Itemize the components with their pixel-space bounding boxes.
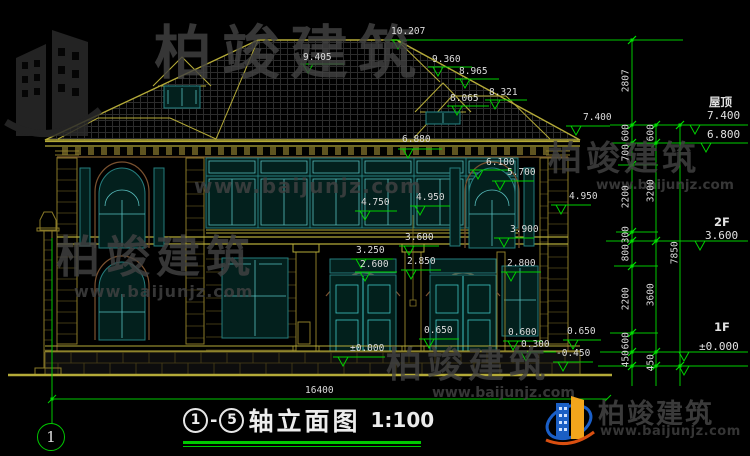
dim-2: 700 xyxy=(621,131,631,175)
dim-0: 600 xyxy=(646,111,656,155)
dim-k6880: 6.880 xyxy=(402,135,431,145)
level-roof-label: 屋顶 xyxy=(709,97,732,109)
dim-8: 450 xyxy=(621,337,631,381)
dim-k2800: 2.800 xyxy=(507,259,536,269)
drawing-title: 1 - 5 轴立面图 1:100 xyxy=(183,402,434,438)
dim-k3250: 3.250 xyxy=(356,246,385,256)
level-f1-label: 1F xyxy=(714,322,730,334)
dim-k10207: 10.207 xyxy=(391,27,425,37)
dim-k8965: 8.965 xyxy=(459,67,488,77)
level-f1-value: ±0.000 xyxy=(699,341,739,352)
dim-k0650l: 0.650 xyxy=(424,326,453,336)
level-roof-value: 7.400 xyxy=(707,110,740,121)
dim-kzero: ±0.000 xyxy=(350,344,384,354)
dim-overall_width: 16400 xyxy=(305,386,334,396)
dim-k3600: 3.600 xyxy=(405,233,434,243)
dim-k5700: 5.700 xyxy=(507,168,536,178)
dim-k0650r: 0.650 xyxy=(567,327,596,337)
dim-k8065: 8.065 xyxy=(450,94,479,104)
dim-k0300: 0.300 xyxy=(521,340,550,350)
brand-logo-url: www.baijunjz.com xyxy=(600,424,741,439)
cad-viewport: 柏竣建筑 www.baijunjz.com 柏竣建筑 www.baijunjz.… xyxy=(0,0,750,456)
title-underline-thick xyxy=(183,441,421,444)
dim-2: 3600 xyxy=(646,273,656,317)
dim-k0600: 0.600 xyxy=(508,328,537,338)
title-text: 轴立面图 xyxy=(248,402,360,438)
title-scale: 1:100 xyxy=(371,408,435,432)
axis-bubble-1: 1 xyxy=(37,423,65,451)
title-axis-to-bubble: 5 xyxy=(219,408,244,433)
level-f2-value: 3.600 xyxy=(705,230,738,241)
dim-overall_height: 7850 xyxy=(670,231,680,275)
dim-6: 2200 xyxy=(621,277,631,321)
title-underline-thin xyxy=(183,446,421,447)
dim-k2850: 2.850 xyxy=(407,257,436,267)
dim-k9405: 9.405 xyxy=(303,53,332,63)
dim-k4750: 4.750 xyxy=(361,198,390,208)
level-f2-label: 2F xyxy=(714,217,730,229)
dim-k9360: 9.360 xyxy=(432,55,461,65)
title-axis-from-bubble: 1 xyxy=(183,408,208,433)
brand-logo: 柏竣建筑 www.baijunjz.com xyxy=(543,386,750,452)
dim-1: 3200 xyxy=(646,169,656,213)
dim-k8321: 8.321 xyxy=(489,88,518,98)
dim-0: 2807 xyxy=(621,59,631,103)
dim-k3900: 3.900 xyxy=(510,225,539,235)
dim-k4950r: 4.950 xyxy=(569,192,598,202)
dim-km0450: -0.450 xyxy=(556,349,590,359)
dim-k2600: 2.600 xyxy=(360,260,389,270)
dim-k7400: 7.400 xyxy=(583,113,612,123)
title-dash: - xyxy=(210,410,217,431)
axis-bubble-1-digit: 1 xyxy=(46,428,56,446)
dim-k4950c: 4.950 xyxy=(416,193,445,203)
dim-5: 800 xyxy=(621,231,631,275)
brand-logo-icon xyxy=(543,388,597,450)
level-eave-value: 6.800 xyxy=(707,129,740,140)
dim-3: 450 xyxy=(646,341,656,385)
